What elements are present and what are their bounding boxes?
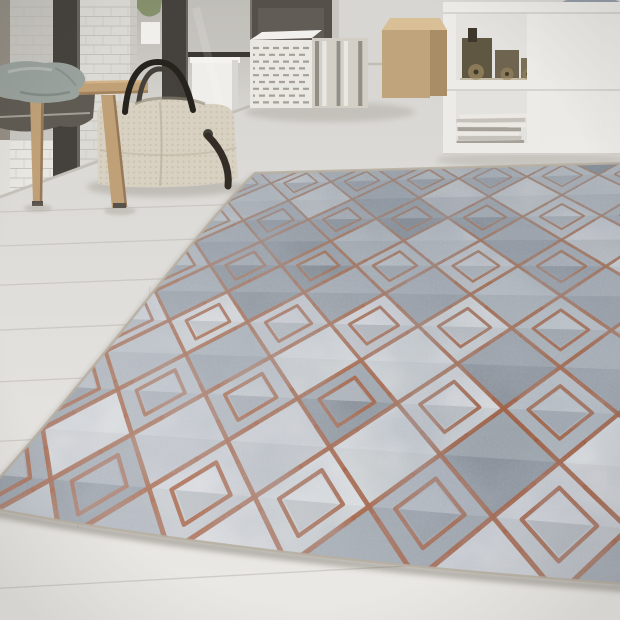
room-photo xyxy=(0,0,620,620)
photo-vignette xyxy=(0,0,620,620)
photo-canvas xyxy=(0,0,620,620)
